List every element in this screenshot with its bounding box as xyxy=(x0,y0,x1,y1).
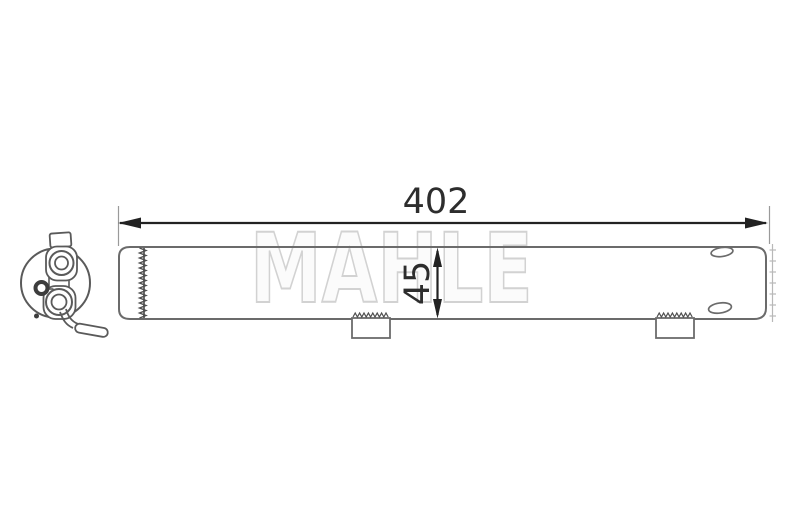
weld-dot xyxy=(34,314,39,319)
right-crimp-serration xyxy=(770,244,777,322)
left-arrowhead-icon xyxy=(118,218,141,229)
sight-glass xyxy=(36,282,48,294)
bracket-bar xyxy=(74,323,108,338)
diameter-dimension-label: 45 xyxy=(400,243,436,323)
bracket-1-serration xyxy=(353,313,388,317)
bottom-oval-port xyxy=(708,301,732,314)
mounting-bracket-2 xyxy=(656,318,694,338)
length-dimension-label: 402 xyxy=(396,186,476,218)
right-arrowhead-icon xyxy=(745,218,768,229)
technical-drawing-canvas: MAHLE xyxy=(0,0,800,527)
mounting-tab xyxy=(50,232,72,247)
tube-body xyxy=(144,247,766,319)
top-port-inner xyxy=(55,257,68,270)
cylinder-side-view xyxy=(119,244,776,338)
bracket-2-serration xyxy=(657,313,692,317)
mounting-bracket-1 xyxy=(352,318,390,338)
bottom-port-inner xyxy=(52,295,67,310)
end-view xyxy=(21,232,108,337)
